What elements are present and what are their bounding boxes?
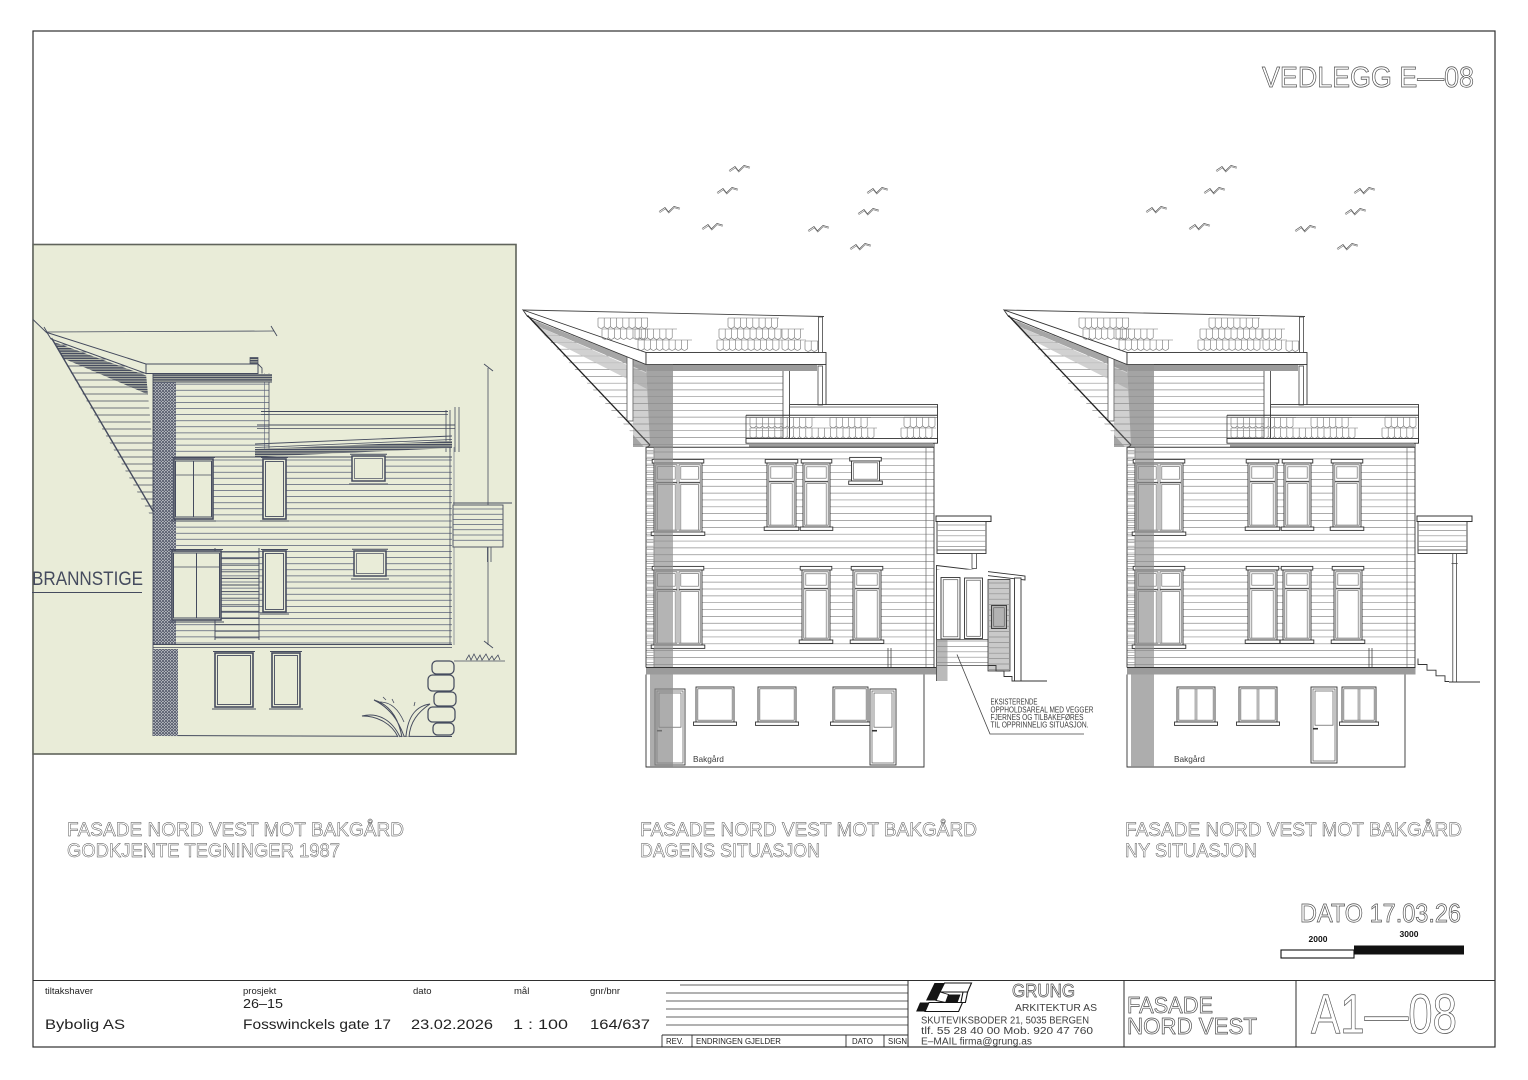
svg-text:dato: dato (413, 986, 432, 997)
svg-text:NORD VEST: NORD VEST (1127, 1013, 1257, 1039)
svg-text:tlf. 55 28 40 00 Mob. 920 47 7: tlf. 55 28 40 00 Mob. 920 47 760 (921, 1026, 1094, 1037)
svg-text:DAGENS SITUASJON: DAGENS SITUASJON (640, 841, 820, 862)
svg-text:gnr/bnr: gnr/bnr (590, 986, 620, 997)
svg-text:tiltakshaver: tiltakshaver (45, 986, 93, 997)
svg-text:SIGN.: SIGN. (888, 1037, 909, 1046)
svg-text:DATO: DATO (852, 1037, 873, 1046)
svg-text:FASADE NORD VEST MOT BAKGÅRD: FASADE NORD VEST MOT BAKGÅRD (1125, 820, 1462, 841)
svg-text:TIL OPPRINNELIG SITUASJON.: TIL OPPRINNELIG SITUASJON. (991, 721, 1089, 730)
svg-text:26–15: 26–15 (243, 996, 283, 1011)
svg-text:REV.: REV. (666, 1037, 683, 1046)
svg-text:Fosswinckels gate 17: Fosswinckels gate 17 (243, 1017, 391, 1032)
svg-text:Bakgård: Bakgård (1174, 754, 1205, 764)
svg-text:E–MAIL firma@grung.as: E–MAIL firma@grung.as (921, 1037, 1032, 1048)
svg-text:A1—08: A1—08 (1311, 982, 1457, 1045)
svg-text:ARKITEKTUR AS: ARKITEKTUR AS (1015, 1003, 1097, 1014)
svg-text:23.02.2026: 23.02.2026 (411, 1017, 493, 1032)
svg-text:164/637: 164/637 (590, 1017, 650, 1032)
svg-text:BRANNSTIGE: BRANNSTIGE (32, 569, 143, 590)
svg-text:DATO 17.03.26: DATO 17.03.26 (1300, 898, 1461, 928)
svg-text:2000: 2000 (1309, 934, 1328, 944)
svg-text:Bybolig AS: Bybolig AS (45, 1017, 125, 1032)
svg-text:Bakgård: Bakgård (693, 754, 724, 764)
svg-text:1 : 100: 1 : 100 (513, 1017, 568, 1032)
svg-text:VEDLEGG E—08: VEDLEGG E—08 (1262, 62, 1474, 94)
svg-text:GRUNG: GRUNG (1012, 981, 1075, 1001)
svg-text:FASADE NORD VEST MOT BAKGÅRD: FASADE NORD VEST MOT BAKGÅRD (67, 820, 404, 841)
svg-text:FASADE NORD VEST MOT BAKGÅRD: FASADE NORD VEST MOT BAKGÅRD (640, 820, 977, 841)
svg-text:SKUTEVIKSBODER 21, 5035 BERGEN: SKUTEVIKSBODER 21, 5035 BERGEN (921, 1016, 1089, 1027)
svg-text:ENDRINGEN GJELDER: ENDRINGEN GJELDER (696, 1037, 781, 1046)
svg-text:NY SITUASJON: NY SITUASJON (1125, 841, 1257, 862)
svg-text:GODKJENTE TEGNINGER 1987: GODKJENTE TEGNINGER 1987 (67, 841, 340, 862)
svg-text:3000: 3000 (1400, 929, 1419, 939)
svg-text:mål: mål (514, 986, 529, 997)
